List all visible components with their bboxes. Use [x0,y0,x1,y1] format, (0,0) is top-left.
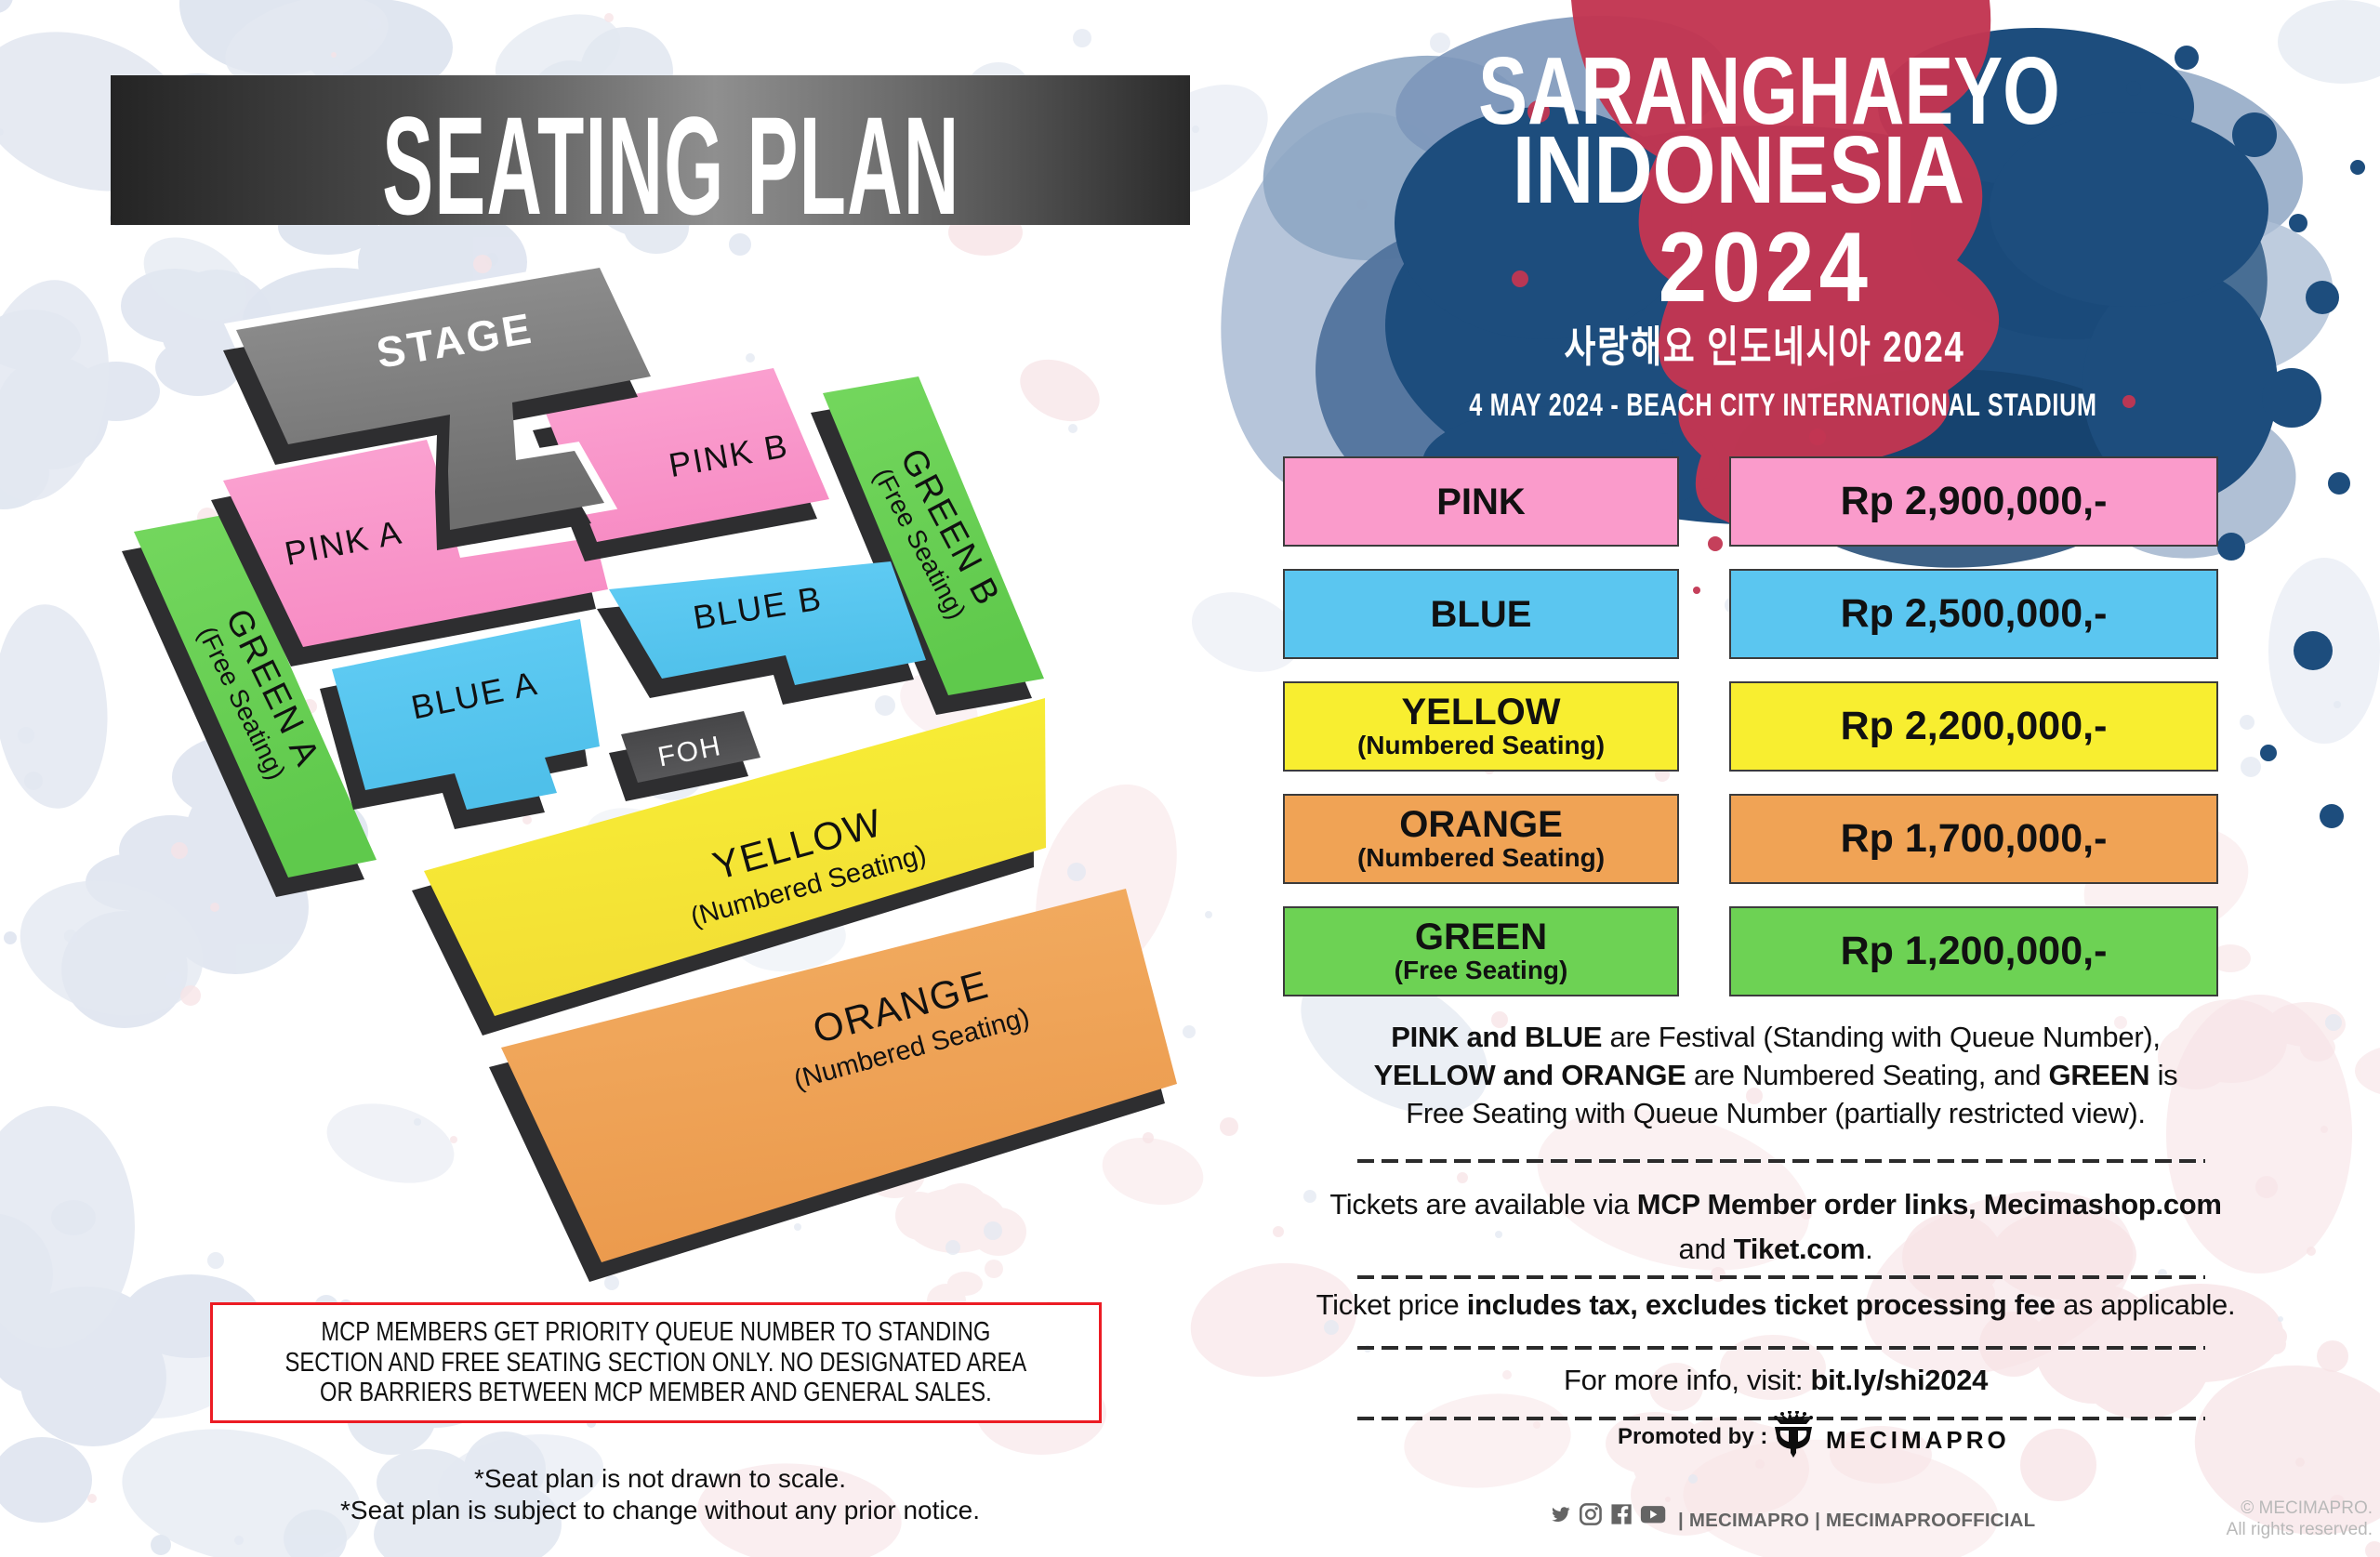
svg-text:MECIMAPRO: MECIMAPRO [1826,1426,2010,1454]
svg-text:| MECIMAPRO | MECIMAPROOFFICIA: | MECIMAPRO | MECIMAPROOFFICIAL [1678,1510,2035,1531]
svg-text:4 MAY 2024 - BEACH CITY INTERN: 4 MAY 2024 - BEACH CITY INTERNATIONAL ST… [1469,388,2097,423]
svg-text:2024: 2024 [1659,212,1873,323]
svg-text:INDONESIA: INDONESIA [1513,116,1964,223]
svg-text:사랑해요 인도네시아 2024: 사랑해요 인도네시아 2024 [1565,323,1965,371]
